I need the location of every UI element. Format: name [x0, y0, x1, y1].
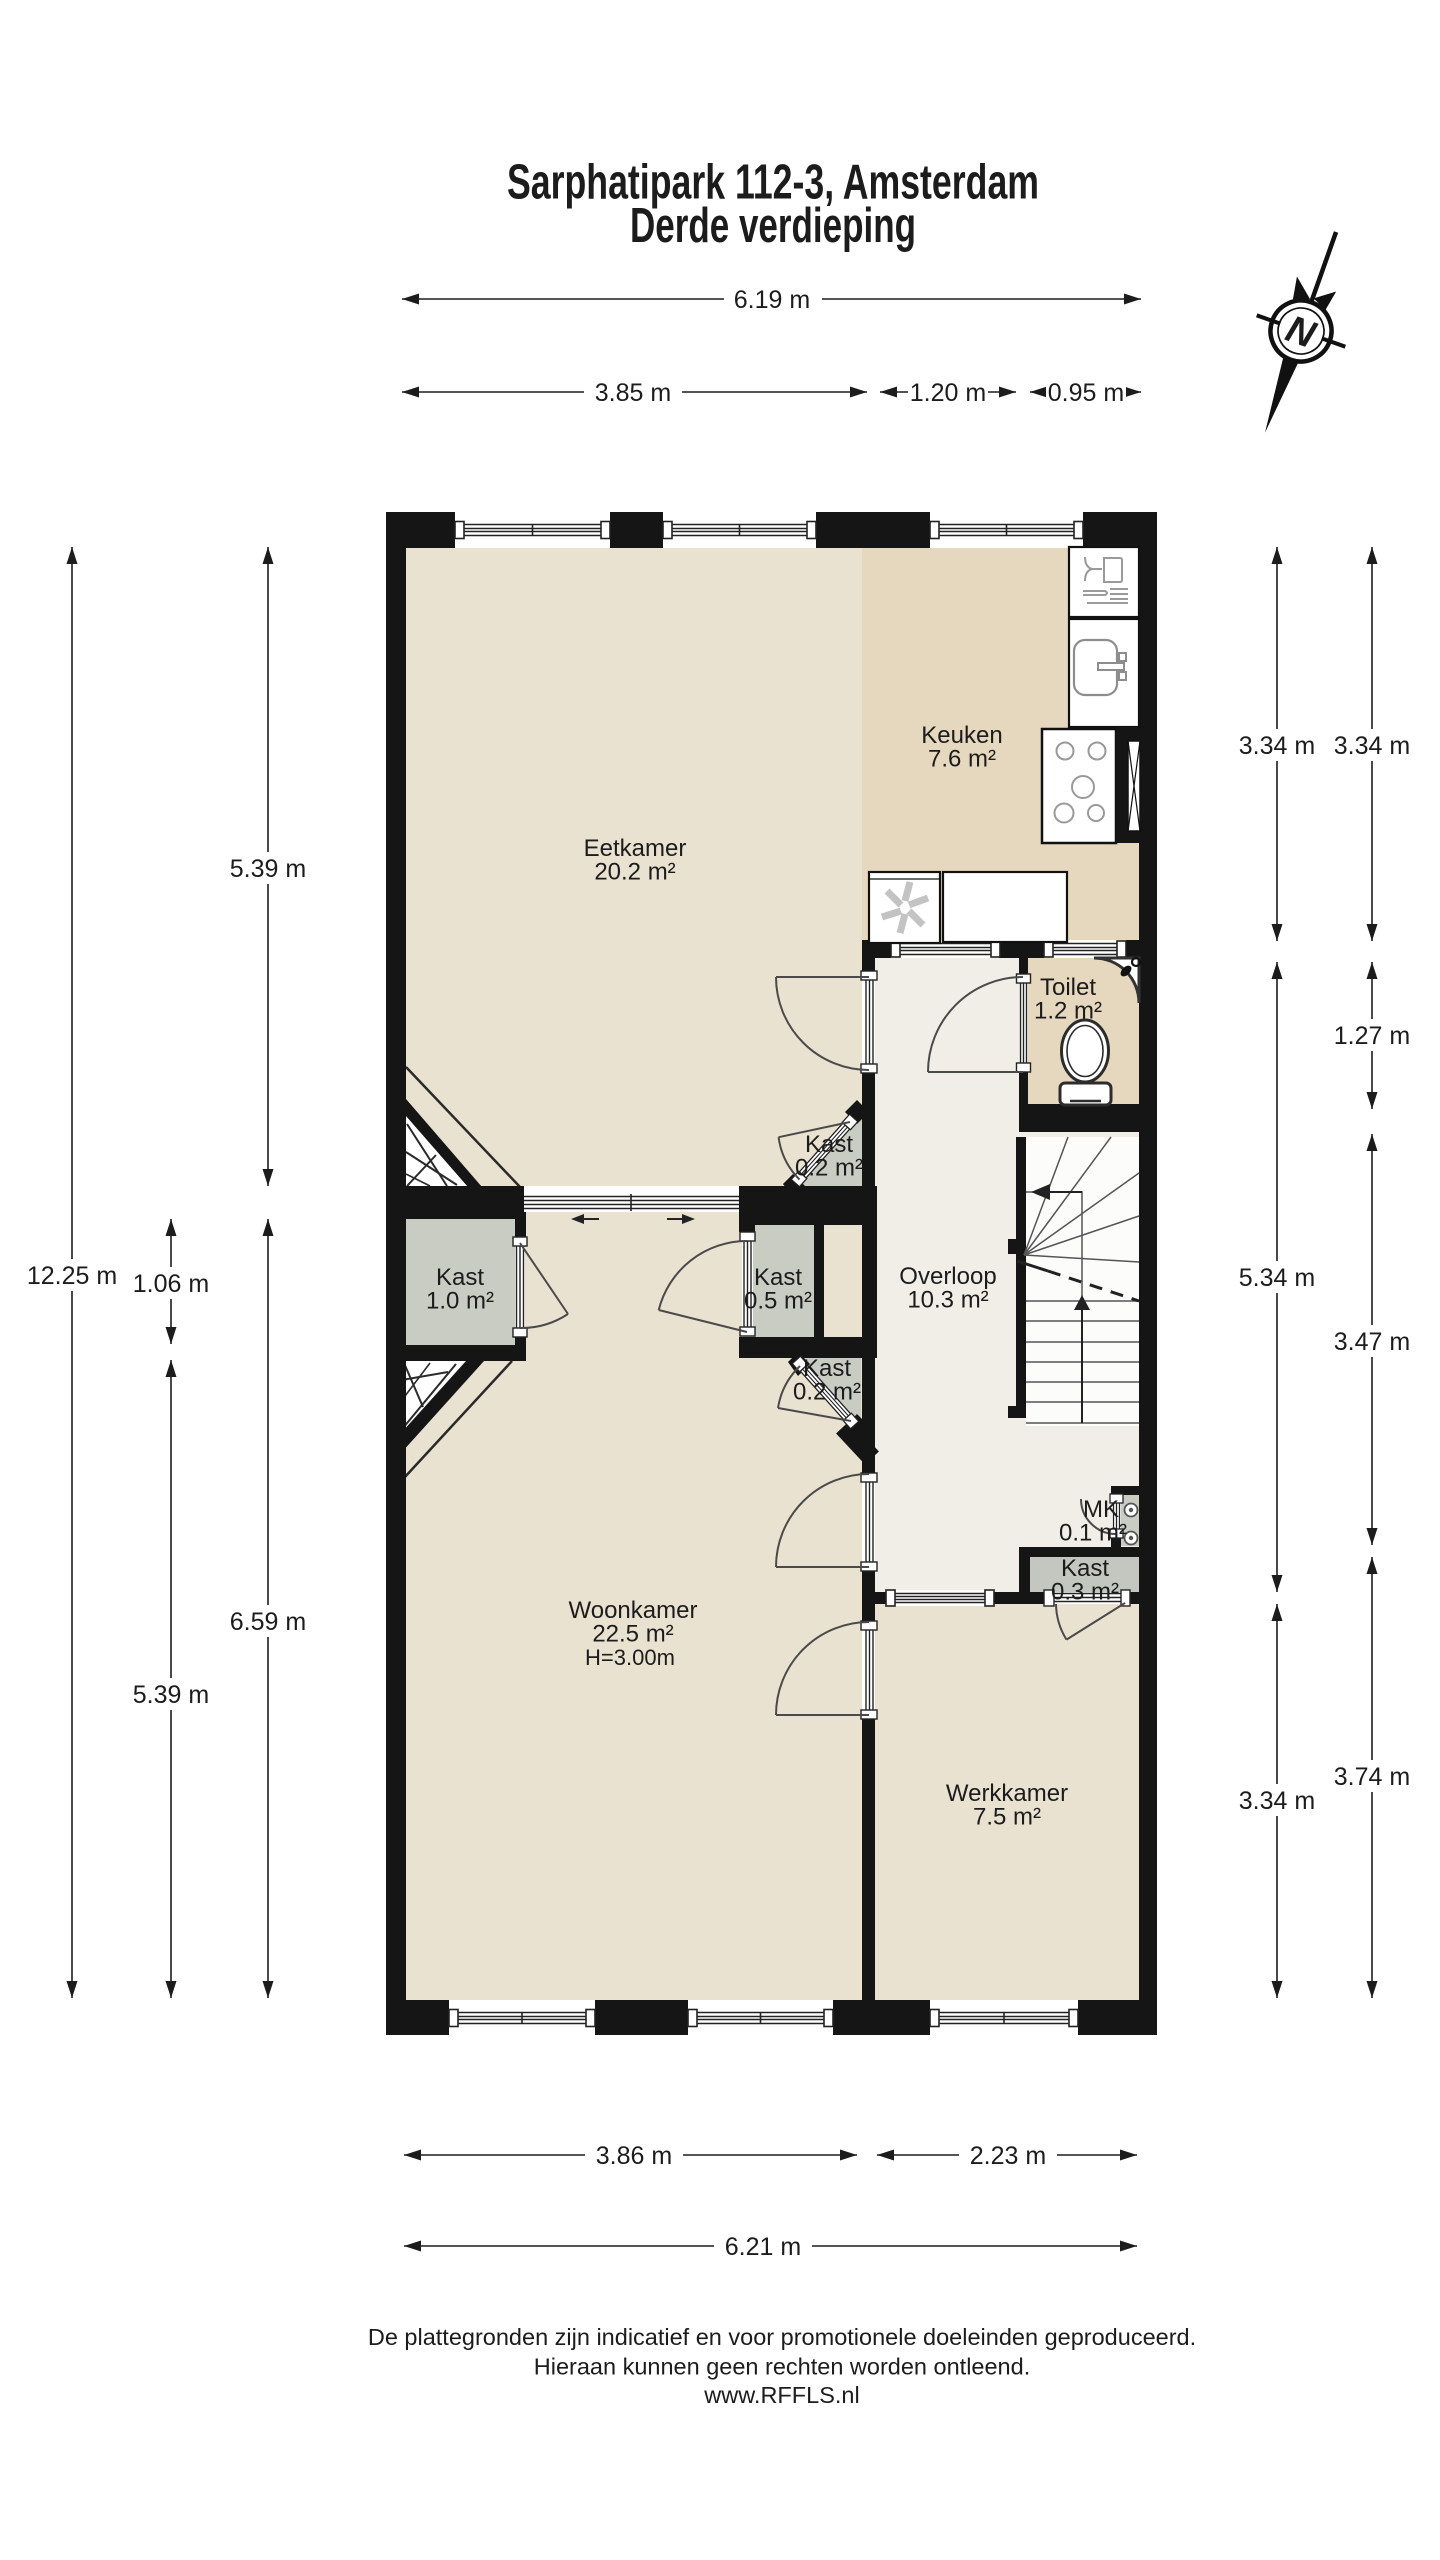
svg-text:2.23 m: 2.23 m: [970, 2142, 1046, 2170]
svg-text:5.34 m: 5.34 m: [1239, 1264, 1315, 1292]
svg-text:0.1 m²: 0.1 m²: [1059, 1520, 1127, 1547]
svg-text:3.74 m: 3.74 m: [1334, 1763, 1410, 1791]
svg-text:3.34 m: 3.34 m: [1239, 732, 1315, 760]
svg-text:6.59 m: 6.59 m: [230, 1608, 306, 1636]
svg-text:20.2 m²: 20.2 m²: [594, 859, 675, 886]
svg-text:De plattegronden zijn indicati: De plattegronden zijn indicatief en voor…: [368, 2324, 1196, 2350]
svg-text:10.3 m²: 10.3 m²: [907, 1287, 988, 1314]
svg-text:7.6 m²: 7.6 m²: [928, 746, 996, 773]
svg-text:3.47 m: 3.47 m: [1334, 1328, 1410, 1356]
svg-text:3.34 m: 3.34 m: [1239, 1787, 1315, 1815]
svg-text:7.5 m²: 7.5 m²: [973, 1804, 1041, 1831]
svg-text:1.27 m: 1.27 m: [1334, 1022, 1410, 1050]
svg-text:12.25 m: 12.25 m: [27, 1262, 117, 1290]
svg-text:3.86 m: 3.86 m: [596, 2142, 672, 2170]
svg-text:0.5 m²: 0.5 m²: [744, 1288, 812, 1315]
svg-text:3.85 m: 3.85 m: [595, 379, 671, 407]
svg-text:5.39 m: 5.39 m: [230, 855, 306, 883]
svg-text:6.21 m: 6.21 m: [725, 2233, 801, 2261]
svg-text:6.19 m: 6.19 m: [734, 286, 810, 314]
svg-text:1.0 m²: 1.0 m²: [426, 1288, 494, 1315]
svg-text:0.95 m: 0.95 m: [1048, 379, 1124, 407]
svg-text:Hieraan kunnen geen rechten wo: Hieraan kunnen geen rechten worden ontle…: [534, 2354, 1030, 2380]
svg-text:Derde verdieping: Derde verdieping: [630, 199, 916, 253]
svg-text:0.3 m²: 0.3 m²: [1051, 1579, 1119, 1606]
svg-text:1.20 m: 1.20 m: [910, 379, 986, 407]
svg-text:0.2 m²: 0.2 m²: [793, 1379, 861, 1406]
svg-text:22.5 m²: 22.5 m²: [592, 1621, 673, 1648]
svg-text:1.2 m²: 1.2 m²: [1034, 998, 1102, 1025]
svg-text:www.RFFLS.nl: www.RFFLS.nl: [703, 2382, 859, 2408]
svg-text:1.06 m: 1.06 m: [133, 1270, 209, 1298]
svg-text:H=3.00m: H=3.00m: [585, 1645, 675, 1670]
svg-text:0.2 m²: 0.2 m²: [795, 1155, 863, 1182]
svg-text:3.34 m: 3.34 m: [1334, 732, 1410, 760]
svg-text:5.39 m: 5.39 m: [133, 1681, 209, 1709]
